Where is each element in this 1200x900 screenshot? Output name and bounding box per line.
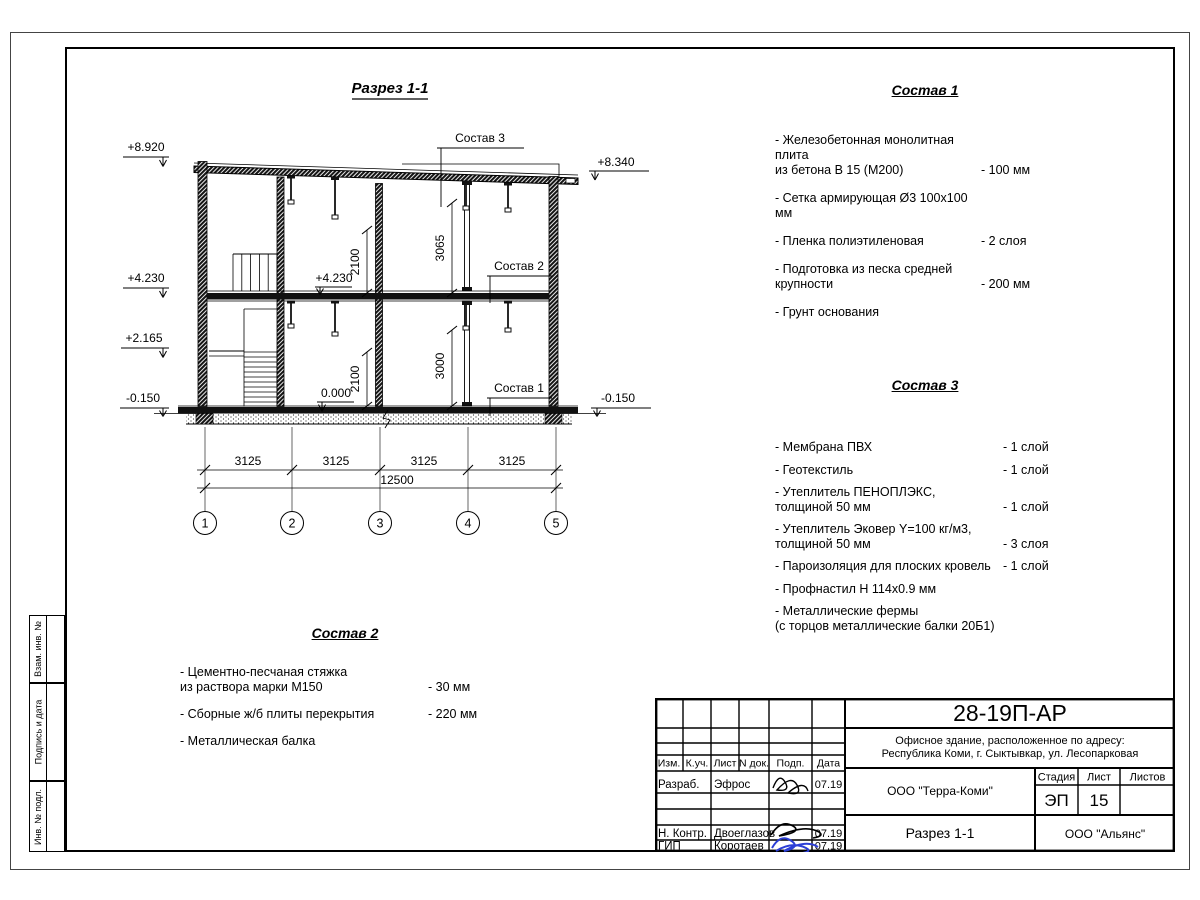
side-box-vzam-inv: Взам. инв. № [29, 615, 65, 683]
side-box-inv-podl: Инв. № подл. [29, 781, 65, 852]
row-name: Двоеглазов [714, 828, 775, 840]
material-row: - Грунт основания [775, 305, 1065, 320]
elevation-value: +8.920 [127, 140, 164, 154]
material-label: - Геотекстиль [775, 463, 1003, 478]
dim-label: 12500 [380, 473, 414, 487]
roof [194, 163, 578, 185]
side-box-label: Взам. инв. № [30, 616, 46, 682]
material-label: - Железобетонная монолитная плита из бет… [775, 133, 981, 178]
col-podp: Подп. [777, 758, 805, 770]
sostav1-header: Состав 1 [858, 82, 992, 98]
material-label: - Мембрана ПВХ [775, 440, 1003, 455]
stage-label: Стадия [1038, 772, 1076, 784]
elevation-value: -0.150 [126, 391, 160, 405]
material-row: - Подготовка из песка средней крупности-… [775, 262, 1065, 292]
row-date: 07.19 [815, 841, 843, 853]
row-date: 07.19 [815, 828, 843, 840]
material-row: - Профнастил Н 114х0.9 мм [775, 582, 1080, 597]
material-label: - Грунт основания [775, 305, 981, 320]
sheet-value: 15 [1090, 791, 1109, 810]
material-value: - 100 мм [981, 163, 1030, 178]
material-row: - Металлическая балка [180, 734, 490, 749]
callout-sostav2-label: Состав 2 [494, 259, 544, 273]
section-view-title: Разрез 1-1 [351, 80, 428, 99]
drawing-name: Разрез 1-1 [906, 825, 975, 841]
row-role: Разраб. [658, 779, 699, 791]
col-kuch: К.уч. [686, 758, 709, 770]
material-value: - 2 слоя [981, 234, 1026, 249]
material-value: - 3 слоя [1003, 537, 1048, 552]
walls [198, 162, 558, 407]
suspended-rods [287, 176, 512, 337]
material-label: - Сетка армирующая Ø3 100х100 мм [775, 191, 981, 221]
grid-bubble-label: 3 [377, 517, 384, 531]
callout-sostav3: Состав 3 [437, 131, 524, 207]
title-block: 28-19П-АР Офисное здание, расположенное … [655, 698, 1175, 852]
sostav1-list: - Железобетонная монолитная плита из бет… [775, 133, 1065, 333]
ground-slab [154, 406, 606, 428]
material-value: - 1 слой [1003, 463, 1049, 478]
sostav2-list: - Цементно-песчаная стяжка из раствора м… [180, 665, 490, 761]
elevation-marks-left: +8.920 +4.230 +2.165 -0.150 [120, 140, 169, 417]
elevation-marks-right: +8.340 -0.150 [589, 155, 651, 417]
material-label: - Пароизоляция для плоских кровель [775, 559, 1003, 574]
sostav2-header: Состав 2 [278, 625, 412, 641]
dim-label: 2100 [348, 248, 362, 275]
view-title-text: Разрез 1-1 [351, 80, 428, 97]
material-row: - Пароизоляция для плоских кровель- 1 сл… [775, 559, 1080, 574]
section-drawing: Разрез 1-1 [90, 55, 690, 575]
grid-bubble-label: 2 [289, 517, 296, 531]
drawing-sheet: { "drawing": { "title": "Разрез 1-1", "g… [0, 0, 1200, 900]
material-label: - Подготовка из песка средней крупности [775, 262, 981, 292]
material-label: - Металлические фермы (с торцов металлич… [775, 604, 1003, 633]
row-role: Н. Контр. [658, 828, 707, 840]
material-value: - 1 слой [1003, 440, 1049, 455]
material-row: - Сборные ж/б плиты перекрытия- 220 мм [180, 707, 490, 722]
dim-label: 3000 [433, 352, 447, 379]
horizontal-dimensions: 3125 3125 3125 3125 12500 [197, 427, 563, 511]
vertical-dimensions: 2100 3065 2100 3000 [348, 199, 457, 410]
material-row: - Утеплитель Эковер Y=100 кг/м3, толщино… [775, 522, 1080, 551]
object-description-line2: Республика Коми, г. Сыктывкар, ул. Лесоп… [882, 748, 1139, 760]
doc-number: 28-19П-АР [953, 700, 1067, 726]
dim-label: 3065 [433, 234, 447, 261]
dim-label: 3125 [411, 454, 438, 468]
object-description-line1: Офисное здание, расположенное по адресу: [895, 735, 1124, 747]
dim-label: 3125 [235, 454, 262, 468]
side-box-label: Подпись и дата [30, 684, 46, 780]
col-ndok: N док. [739, 758, 769, 770]
side-box-label: Инв. № подл. [30, 782, 46, 851]
grid-bubbles: 1 2 3 4 5 [194, 512, 568, 535]
elevation-value: -0.150 [601, 391, 635, 405]
dim-label: 3125 [323, 454, 350, 468]
row-name: Эфрос [714, 779, 751, 791]
stage-value: ЭП [1044, 791, 1068, 810]
material-row: - Цементно-песчаная стяжка из раствора м… [180, 665, 490, 695]
material-value: - 1 слой [1003, 500, 1049, 515]
elevation-value: +2.165 [125, 331, 162, 345]
sheets-label: Листов [1130, 772, 1166, 784]
elevation-value: +8.340 [597, 155, 634, 169]
dim-label: 2100 [348, 365, 362, 392]
material-value: - 30 мм [428, 680, 470, 695]
material-label: - Цементно-песчаная стяжка из раствора м… [180, 665, 428, 695]
material-value: - 200 мм [981, 277, 1030, 292]
stairs [209, 254, 280, 407]
col-list: Лист [714, 758, 737, 770]
material-row: - Пленка полиэтиленовая- 2 слоя [775, 234, 1065, 249]
callout-sostav1-label: Состав 1 [494, 381, 544, 395]
sostav3-header: Состав 3 [858, 377, 992, 393]
material-row: - Металлические фермы (с торцов металлич… [775, 604, 1080, 633]
side-box-podpis-data: Подпись и дата [29, 683, 65, 781]
grid-bubble-label: 5 [553, 517, 560, 531]
sostav3-list: - Мембрана ПВХ- 1 слой - Геотекстиль- 1 … [775, 440, 1080, 641]
material-label: - Утеплитель ПЕНОПЛЭКС, толщиной 50 мм [775, 485, 1003, 514]
org2-name: ООО "Альянс" [1065, 827, 1145, 841]
material-value: - 220 мм [428, 707, 477, 722]
row-role: ГИП [658, 841, 681, 853]
material-label: - Пленка полиэтиленовая [775, 234, 981, 249]
material-row: - Утеплитель ПЕНОПЛЭКС, толщиной 50 мм- … [775, 485, 1080, 514]
material-label: - Профнастил Н 114х0.9 мм [775, 582, 1003, 597]
row-name: Коротаев [714, 841, 764, 853]
elevation-value: +4.230 [127, 271, 164, 285]
material-row: - Геотекстиль- 1 слой [775, 463, 1080, 478]
callout-sostav3-label: Состав 3 [455, 131, 505, 145]
grid-bubble-label: 4 [465, 517, 472, 531]
material-row: - Сетка армирующая Ø3 100х100 мм [775, 191, 1065, 221]
material-row: - Железобетонная монолитная плита из бет… [775, 133, 1065, 178]
col-data: Дата [817, 758, 840, 770]
material-label: - Сборные ж/б плиты перекрытия [180, 707, 428, 722]
material-label: - Металлическая балка [180, 734, 428, 749]
col-izm: Изм. [658, 758, 681, 770]
material-label: - Утеплитель Эковер Y=100 кг/м3, толщино… [775, 522, 1003, 551]
material-row: - Мембрана ПВХ- 1 слой [775, 440, 1080, 455]
row-date: 07.19 [815, 779, 843, 791]
grid-bubble-label: 1 [202, 517, 209, 531]
sheet-label: Лист [1087, 772, 1111, 784]
elevation-value: 0.000 [321, 386, 351, 400]
material-value: - 1 слой [1003, 559, 1049, 574]
org-name: ООО "Терра-Коми" [887, 784, 993, 798]
dim-label: 3125 [499, 454, 526, 468]
